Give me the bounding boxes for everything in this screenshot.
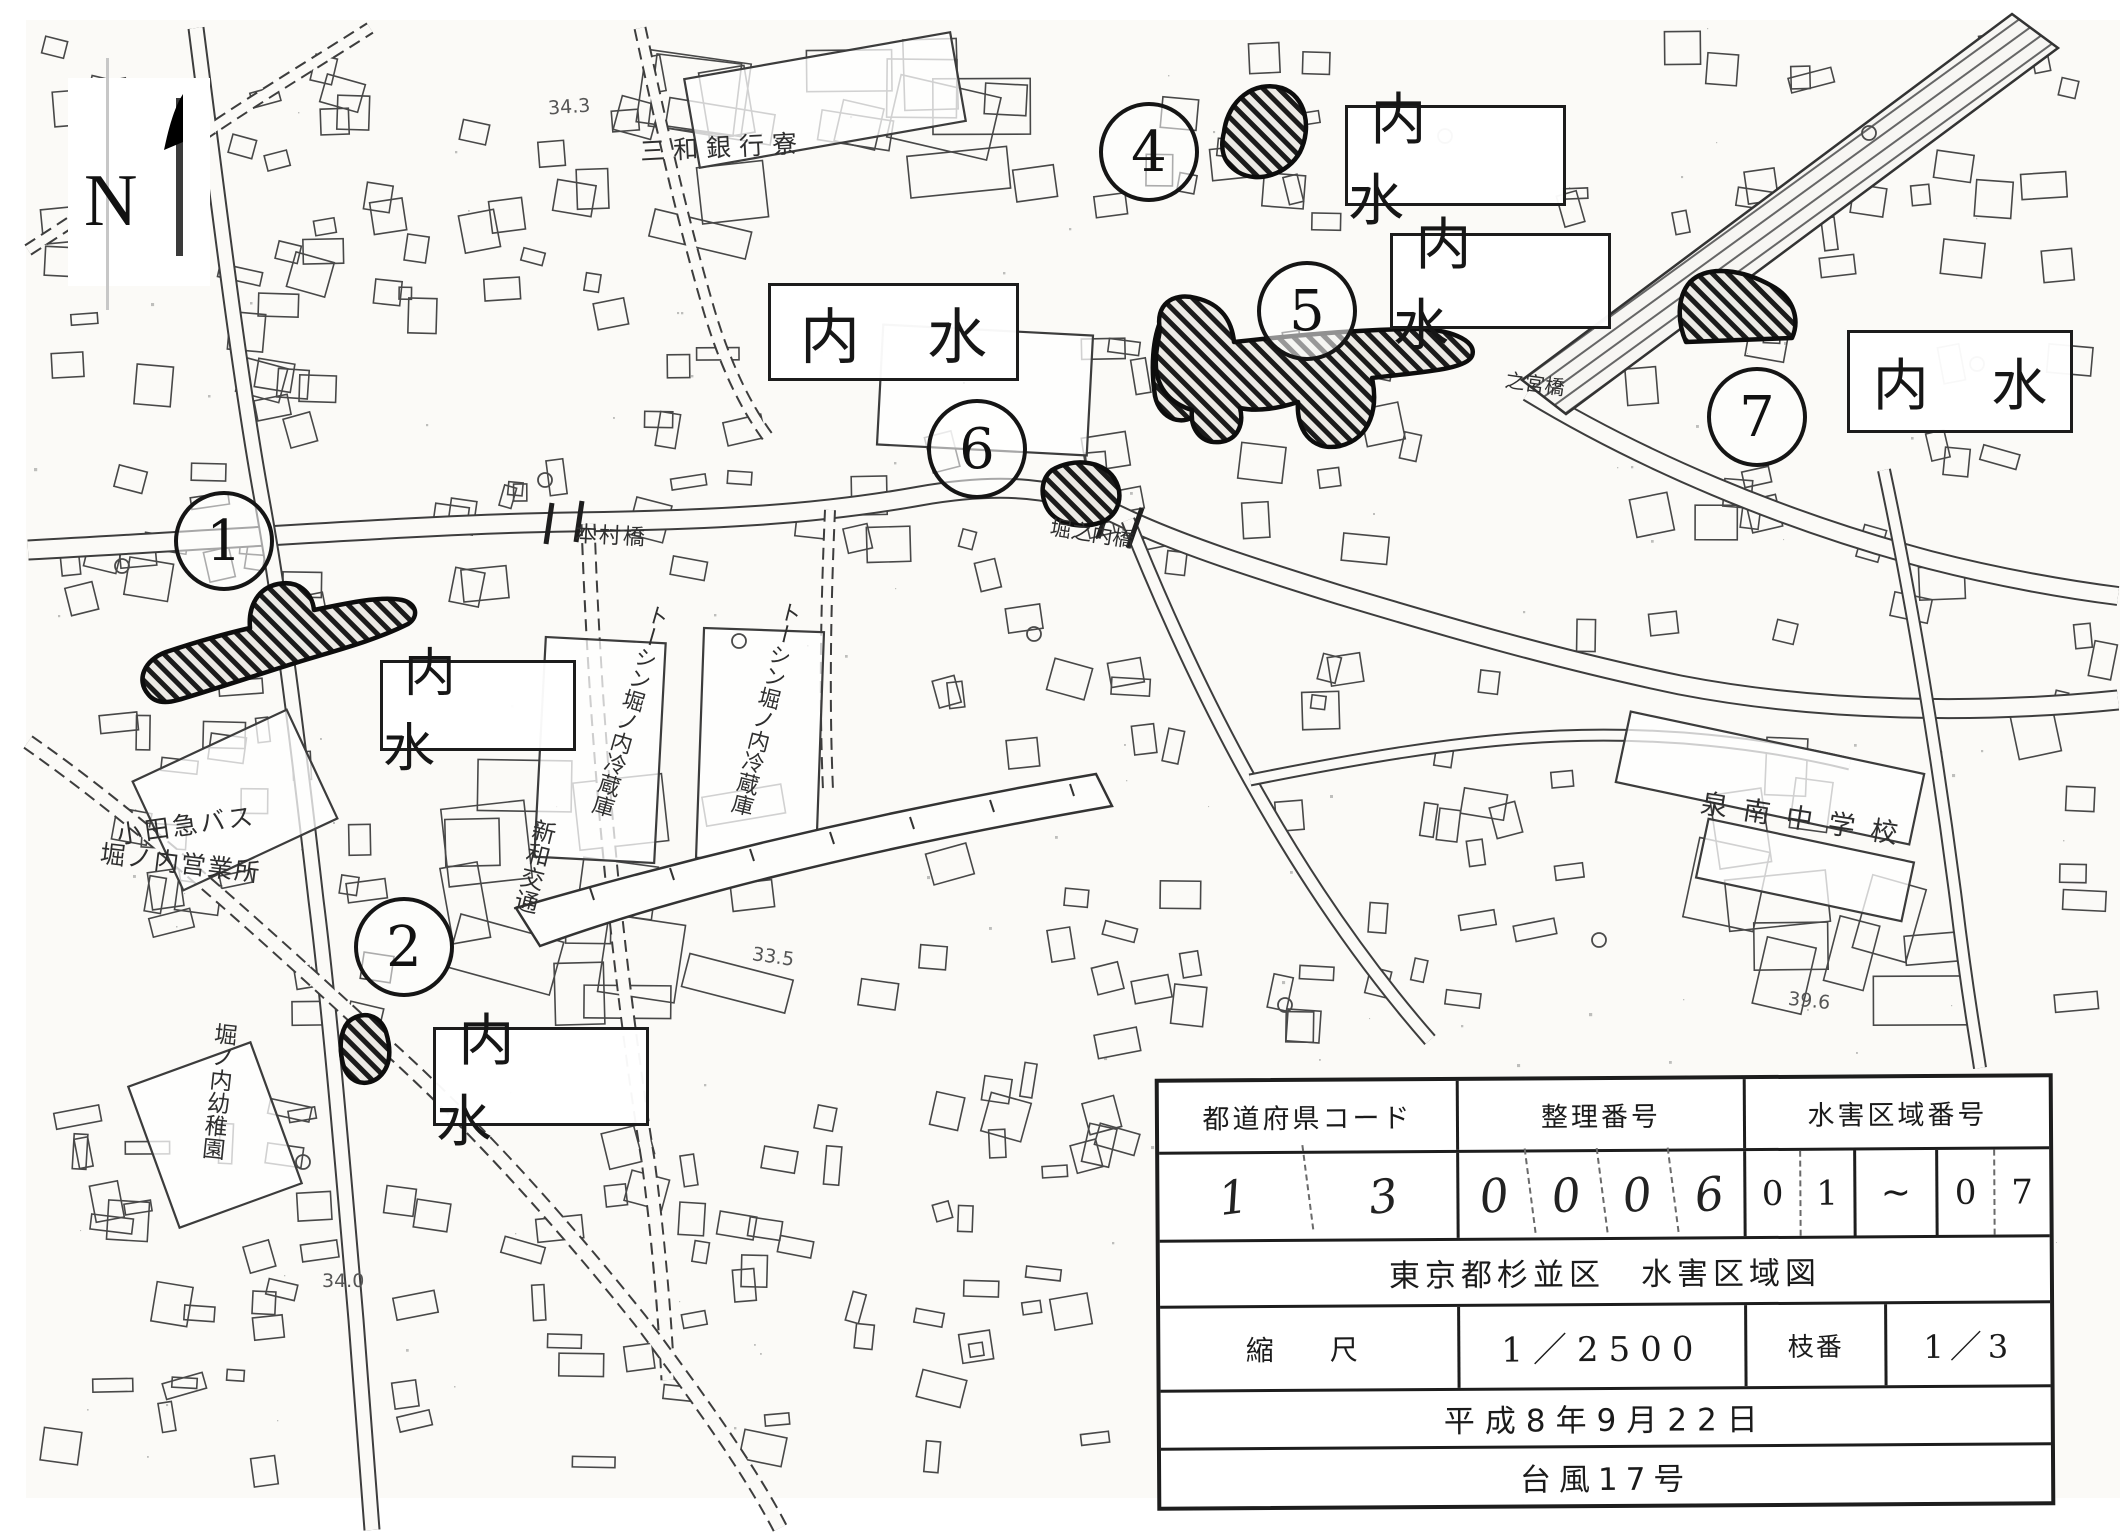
flood-label-box-zone6: 内 水 <box>768 283 1019 381</box>
pref-code-value: 1 3 <box>1159 1153 1460 1240</box>
north-arrow-icon <box>156 84 202 274</box>
range-tilde: ~ <box>1856 1150 1939 1235</box>
branch-value: 1／3 <box>1887 1303 2050 1385</box>
flood-zone-7 <box>1680 271 1796 342</box>
table-value-row: 1 3 0 0 0 6 0 1 ~ 0 7 <box>1159 1149 2050 1242</box>
flood-label-box-zone7: 内 水 <box>1847 330 2073 433</box>
zone-circle-4: 4 <box>1099 102 1199 202</box>
zone-circle-2: 2 <box>354 897 454 997</box>
zone-circle-1: 1 <box>174 491 274 591</box>
flood-zone-1 <box>142 583 415 702</box>
flood-label-box-zone5: 内 水 <box>1390 233 1611 329</box>
zone-circle-6: 6 <box>927 399 1027 499</box>
north-compass: N <box>68 78 210 286</box>
event-name: 台風17号 <box>1161 1445 2051 1506</box>
table-header-row: 都道府県コード 整理番号 水害区域番号 <box>1159 1077 2049 1154</box>
north-label: N <box>84 164 137 238</box>
map-sheet-title: 東京都杉並区 水害区域図 <box>1160 1237 2050 1305</box>
flood-zone-4a <box>1222 86 1306 177</box>
table-scale-row: 縮 尺 1／2500 枝番 1／3 <box>1160 1303 2050 1392</box>
table-event-row: 台風17号 <box>1161 1445 2051 1506</box>
table-title-row: 東京都杉並区 水害区域図 <box>1160 1237 2050 1308</box>
flood-label-box-zone4: 内 水 <box>1345 105 1566 206</box>
scale-value: 1／2500 <box>1460 1305 1747 1388</box>
sheet-info-table: 都道府県コード 整理番号 水害区域番号 1 3 0 0 0 6 0 1 ~ <box>1155 1073 2056 1510</box>
header-ref-number: 整理番号 <box>1459 1079 1746 1150</box>
branch-label: 枝番 <box>1747 1304 1887 1386</box>
header-flood-area-number: 水害区域番号 <box>1746 1077 2049 1148</box>
spot-elevation-343: 34.3 <box>547 95 591 120</box>
spot-elevation-396: 39.6 <box>1787 988 1831 1014</box>
zone-circle-5: 5 <box>1257 261 1357 361</box>
scale-label: 縮 尺 <box>1160 1307 1460 1390</box>
zone-circle-7: 7 <box>1707 367 1807 467</box>
survey-date: 平成8年9月22日 <box>1161 1387 2051 1447</box>
flood-map-sheet: N 1 2 4 5 6 7 内 水 内 水 内 水 内 水 内 水 内 水 三和… <box>0 0 2120 1538</box>
label-honmura-bridge: 本村橋 <box>574 516 648 552</box>
ref-number-value: 0 0 0 6 <box>1459 1151 1747 1238</box>
flood-label-box-zone1: 内 水 <box>380 660 576 751</box>
flood-zone-2 <box>341 1015 390 1083</box>
table-date-row: 平成8年9月22日 <box>1161 1387 2051 1450</box>
flood-label-box-zone2: 内 水 <box>433 1027 649 1126</box>
header-pref-code: 都道府県コード <box>1159 1081 1459 1152</box>
flood-area-number-value: 0 1 ~ 0 7 <box>1746 1149 2050 1236</box>
spot-elevation-340: 34.0 <box>322 1270 364 1292</box>
